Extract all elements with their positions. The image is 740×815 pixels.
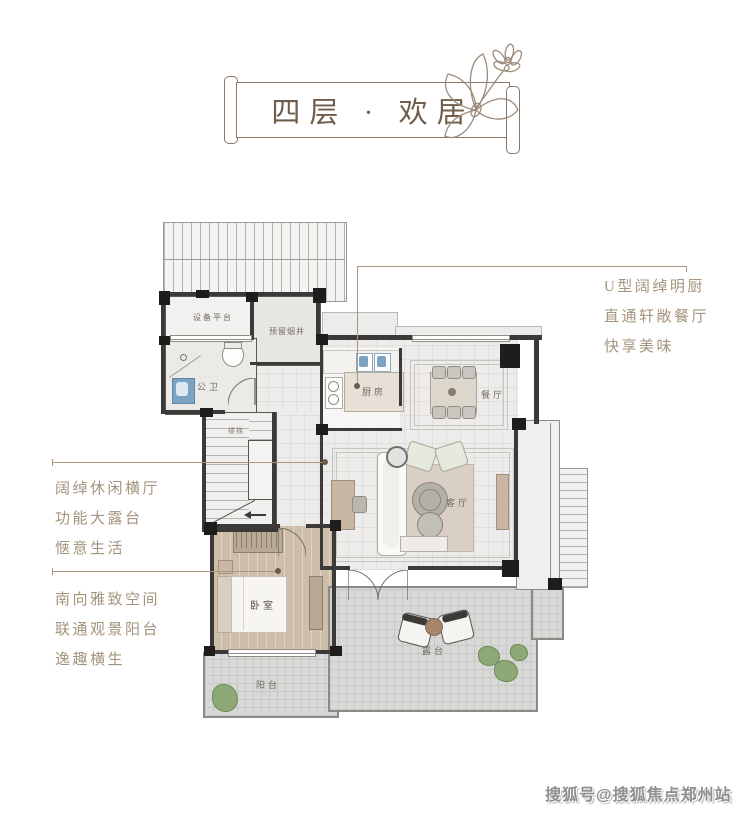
- column: [316, 334, 328, 345]
- column: [316, 424, 328, 435]
- orchid-flower-icon: [420, 34, 532, 156]
- terrace-table: [425, 618, 443, 636]
- stove-burner: [328, 394, 339, 405]
- kitchen-sink-right-basin: [377, 356, 386, 367]
- annotation-line: 直通轩敞餐厅: [604, 302, 709, 332]
- wall: [210, 524, 214, 654]
- wall: [320, 428, 402, 431]
- column: [512, 418, 526, 430]
- annotation-line: U型阔绰明厨: [604, 272, 709, 302]
- column: [548, 578, 562, 590]
- wall: [161, 292, 165, 414]
- room-label-equipment: 设备平台: [193, 312, 233, 323]
- dining-chair: [462, 366, 476, 379]
- bedroom-door-arc: [278, 528, 306, 556]
- room-label-bathroom: 公卫: [197, 380, 221, 393]
- stair-arrow-shaft: [250, 514, 266, 516]
- dining-chair: [447, 366, 461, 379]
- room-label-dining: 餐厅: [481, 388, 505, 401]
- room-label-kitchen: 厨房: [362, 385, 386, 398]
- wall: [320, 338, 323, 430]
- desk-chair: [352, 496, 367, 513]
- column: [200, 408, 213, 417]
- louver-hatch-right: [558, 468, 588, 588]
- sofa-cushions: [383, 458, 399, 548]
- dining-chair: [447, 406, 461, 419]
- wall: [332, 524, 336, 654]
- stove-burner: [328, 381, 339, 392]
- dining-centerpiece: [448, 388, 456, 396]
- kitchen-leader-v: [357, 266, 358, 386]
- bathroom-door-arc: [228, 378, 256, 406]
- side-terrace-strip: [516, 420, 560, 590]
- room-label-shaft: 预留烟井: [269, 326, 305, 337]
- annotation-line: 阔绰休闲横厅: [55, 474, 160, 504]
- wall: [320, 430, 323, 570]
- dining-chair: [432, 406, 446, 419]
- column: [330, 520, 341, 531]
- dining-window: [412, 335, 510, 342]
- bedroom-leader-dot: [275, 568, 281, 574]
- annotation-line: 功能大露台: [55, 504, 160, 534]
- tv-console: [496, 474, 509, 530]
- wall: [161, 410, 225, 414]
- wall: [272, 412, 276, 532]
- room-label-stairs: 楼梯: [228, 426, 244, 436]
- kitchen-leader-dot: [354, 383, 360, 389]
- wardrobe-hangers: [236, 532, 278, 548]
- bathroom-sink-basin: [176, 382, 188, 396]
- column: [204, 646, 215, 656]
- annotation-line: 逸趣横生: [55, 645, 160, 675]
- kitchen-sink-left-basin: [359, 356, 368, 367]
- wall: [250, 362, 322, 365]
- column: [204, 522, 217, 535]
- side-terrace-rail: [550, 423, 551, 585]
- wall: [322, 566, 350, 570]
- stair-void: [248, 440, 274, 500]
- dining-chair: [462, 406, 476, 419]
- bedroom-window: [228, 649, 316, 657]
- watermark: 搜狐号@搜狐焦点郑州站: [545, 781, 732, 805]
- room-label-balcony: 阳台: [256, 678, 280, 691]
- bedroom-bench: [309, 576, 323, 630]
- column: [330, 646, 342, 656]
- column: [313, 288, 326, 303]
- annotation-line: 快享美味: [604, 332, 709, 362]
- wall: [408, 566, 516, 570]
- bed-fold-line: [243, 577, 244, 630]
- annotation-kitchen: U型阔绰明厨 直通轩敞餐厅 快享美味: [604, 272, 709, 362]
- room-label-terrace: 露台: [422, 644, 446, 657]
- annotation-line: 惬意生活: [55, 534, 160, 564]
- terrace-door-arc-left: [348, 570, 378, 600]
- terrace-plant: [494, 660, 518, 682]
- column: [159, 336, 170, 345]
- toilet-tank: [224, 342, 242, 349]
- coffee-table-ring: [419, 489, 441, 511]
- annotation-line: 南向雅致空间: [55, 585, 160, 615]
- bedroom-leader-h: [52, 571, 278, 572]
- wall: [161, 292, 321, 296]
- wall: [202, 412, 206, 532]
- annotation-line: 联通观景阳台: [55, 615, 160, 645]
- column: [246, 292, 258, 302]
- room-label-bedroom: 卧室: [250, 597, 276, 612]
- balcony-plant: [212, 684, 238, 712]
- roof-hatch-midline: [163, 259, 345, 260]
- side-table: [417, 512, 443, 538]
- column: [502, 560, 519, 577]
- annotation-terrace: 阔绰休闲横厅 功能大露台 惬意生活: [55, 474, 160, 564]
- wall: [514, 428, 518, 570]
- room-label-living: 客厅: [446, 496, 470, 509]
- terrace-door-arc-right: [378, 570, 408, 600]
- floor-lamp: [386, 446, 408, 468]
- wall: [534, 338, 539, 424]
- terrace-notch-floor: [531, 586, 564, 640]
- wall: [210, 524, 280, 528]
- floorplan-page: 四层 · 欢居: [0, 0, 740, 815]
- shower-drain: [180, 354, 187, 361]
- bathroom-window: [170, 335, 252, 342]
- stair-arrow-head: [244, 511, 251, 519]
- column: [196, 290, 209, 298]
- annotation-bedroom: 南向雅致空间 联通观景阳台 逸趣横生: [55, 585, 160, 675]
- living-bench: [400, 536, 448, 552]
- terrace-plant: [510, 644, 528, 661]
- living-leader-h: [52, 462, 325, 463]
- wall: [399, 348, 402, 406]
- living-leader-dot: [322, 459, 328, 465]
- column: [500, 344, 520, 368]
- stair-steps-top: [249, 414, 273, 440]
- kitchen-leader-h: [357, 266, 687, 267]
- column: [159, 291, 170, 305]
- dining-chair: [432, 366, 446, 379]
